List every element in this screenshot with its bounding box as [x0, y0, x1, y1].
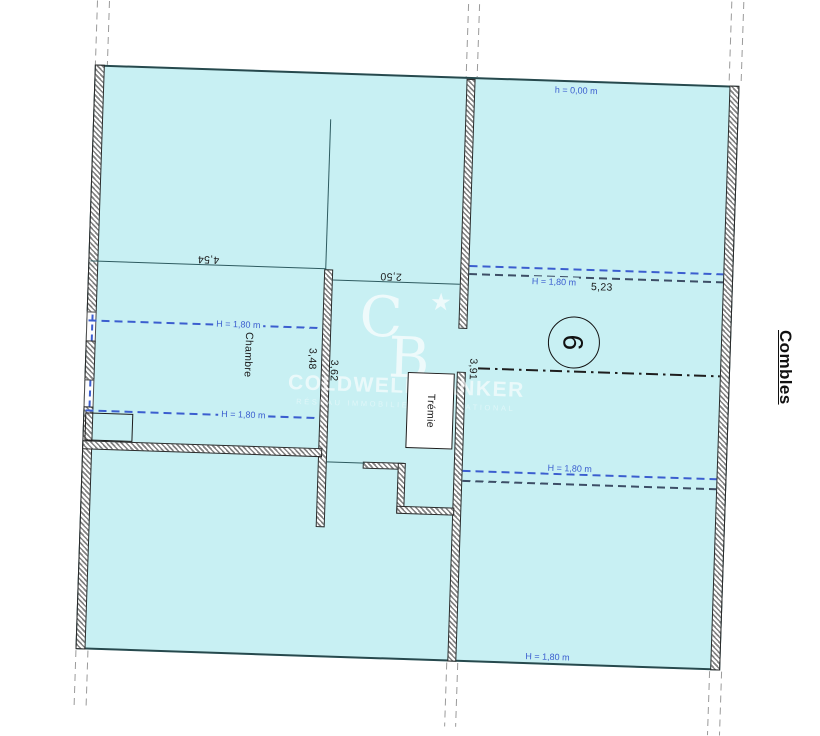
projection-line — [455, 663, 458, 727]
room-label-chambre: Chambre — [242, 332, 255, 378]
height-180-label: H = 1,80 m — [544, 463, 595, 475]
tremie-box: Trémie — [405, 372, 454, 450]
floor-title-text: Combles — [775, 330, 795, 405]
height-180-label: H = 1,80 m — [522, 651, 573, 663]
projection-line — [729, 2, 733, 86]
attic-outline — [75, 64, 739, 670]
projection-line — [719, 672, 722, 736]
projection-line — [707, 671, 710, 735]
floor-plan: Trémie C B ★ COLDWELL BANKER RÉSEAU IMMO… — [75, 64, 739, 670]
projection-line — [477, 4, 480, 77]
dimension-5-23: 5,23 — [591, 281, 613, 294]
dimension-3-91: 3,91 — [467, 358, 480, 380]
height-180-label: H = 1,80 m — [529, 276, 580, 288]
ridge-height-label: h = 0,00 m — [552, 85, 601, 97]
projection-line — [444, 662, 447, 726]
height-180-label: H = 1,80 m — [213, 319, 264, 331]
dimension-3-48: 3,48 — [306, 348, 319, 370]
projection-line — [107, 1, 110, 65]
wall-left-middle — [84, 340, 95, 381]
projection-line — [95, 1, 98, 65]
tremie-label: Trémie — [424, 394, 437, 428]
floor-title-combles: Combles — [795, 330, 820, 350]
dimension-2-50: 2,50 — [380, 270, 402, 283]
height-180-label: H = 1,80 m — [218, 409, 269, 421]
projection-line — [86, 651, 89, 707]
room-number: 9 — [558, 334, 590, 351]
dimension-3-62: 3,62 — [328, 360, 341, 382]
projection-line — [741, 2, 745, 86]
floor-plan-page: Trémie C B ★ COLDWELL BANKER RÉSEAU IMMO… — [0, 0, 820, 702]
dimension-4-54: 4,54 — [197, 253, 219, 266]
closet-outline — [84, 412, 133, 442]
projection-line — [466, 4, 469, 77]
projection-line — [74, 650, 77, 706]
